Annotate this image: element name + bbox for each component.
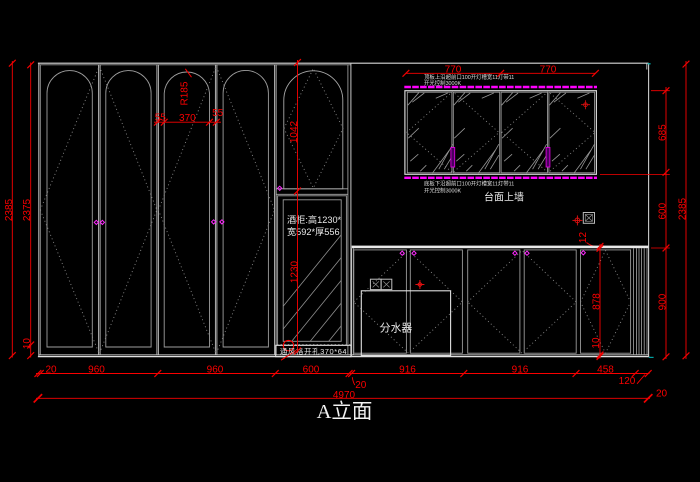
svg-text:55: 55 xyxy=(212,108,224,119)
svg-text:台面上墙: 台面上墙 xyxy=(484,191,524,204)
svg-text:900: 900 xyxy=(657,293,668,310)
svg-text:916: 916 xyxy=(512,365,529,376)
svg-text:1230: 1230 xyxy=(290,260,301,283)
svg-text:A立面: A立面 xyxy=(317,400,373,423)
svg-text:分水器: 分水器 xyxy=(380,321,413,334)
svg-text:20: 20 xyxy=(656,389,668,400)
svg-text:开光控制3000K: 开光控制3000K xyxy=(424,186,462,194)
svg-text:916: 916 xyxy=(399,365,416,376)
svg-text:1042: 1042 xyxy=(289,120,300,143)
svg-text:2375: 2375 xyxy=(22,198,33,221)
svg-text:770: 770 xyxy=(540,65,557,76)
svg-text:370: 370 xyxy=(179,113,196,124)
svg-text:开光控制3000K: 开光控制3000K xyxy=(424,79,462,87)
svg-text:20: 20 xyxy=(45,365,57,376)
svg-text:12: 12 xyxy=(578,232,589,244)
svg-text:2385: 2385 xyxy=(4,198,15,221)
svg-text:960: 960 xyxy=(88,365,105,376)
svg-text:2385: 2385 xyxy=(677,197,688,220)
svg-text:878: 878 xyxy=(592,293,603,310)
svg-text:55: 55 xyxy=(155,112,167,123)
svg-text:600: 600 xyxy=(303,365,320,376)
svg-text:宽592*厚556: 宽592*厚556 xyxy=(287,226,340,237)
svg-text:R185: R185 xyxy=(180,81,191,105)
svg-text:10: 10 xyxy=(591,337,602,349)
svg-text:10: 10 xyxy=(22,338,33,350)
svg-text:20: 20 xyxy=(355,380,367,391)
svg-text:底板下沿超前口100开灯槽宽11灯带11: 底板下沿超前口100开灯槽宽11灯带11 xyxy=(424,179,514,187)
svg-text:458: 458 xyxy=(597,365,614,376)
svg-text:960: 960 xyxy=(207,365,224,376)
svg-text:685: 685 xyxy=(657,124,668,141)
svg-text:通风格开孔370*64: 通风格开孔370*64 xyxy=(280,346,347,356)
svg-text:4970: 4970 xyxy=(333,390,356,401)
svg-text:120: 120 xyxy=(619,376,636,387)
svg-text:600: 600 xyxy=(657,202,668,219)
svg-text:770: 770 xyxy=(445,65,462,76)
svg-text:酒柜:高1230*: 酒柜:高1230* xyxy=(287,214,342,225)
svg-text:顶板上沿超前口100开灯槽宽11灯带11: 顶板上沿超前口100开灯槽宽11灯带11 xyxy=(424,73,514,81)
